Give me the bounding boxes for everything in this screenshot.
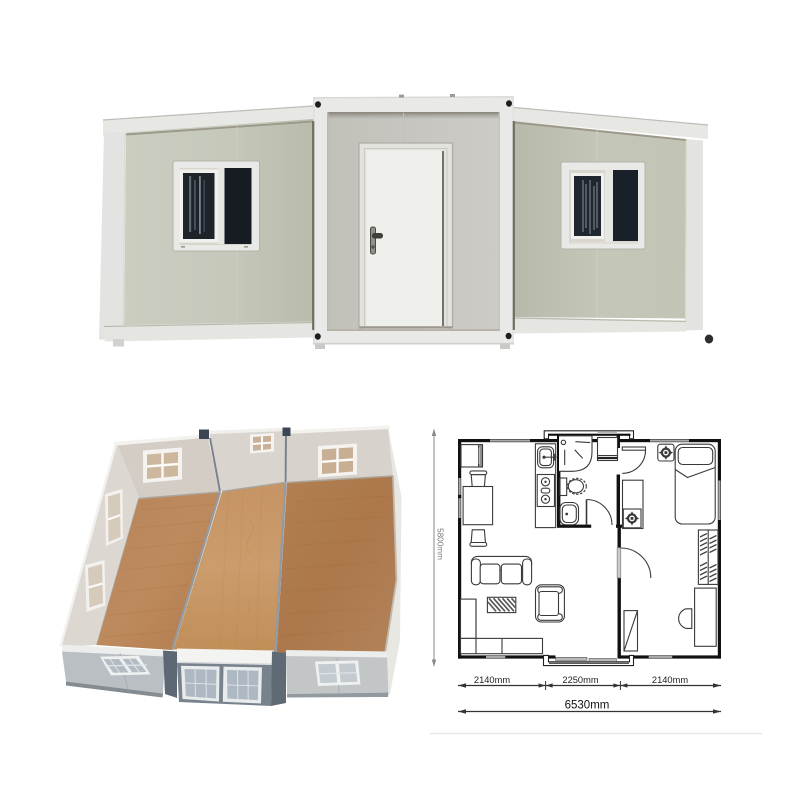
svg-text:2140mm: 2140mm	[474, 675, 510, 685]
svg-text:2250mm: 2250mm	[562, 675, 598, 685]
svg-text:2140mm: 2140mm	[652, 675, 688, 685]
svg-text:6530mm: 6530mm	[565, 700, 610, 712]
svg-text:5800mm: 5800mm	[436, 528, 445, 560]
